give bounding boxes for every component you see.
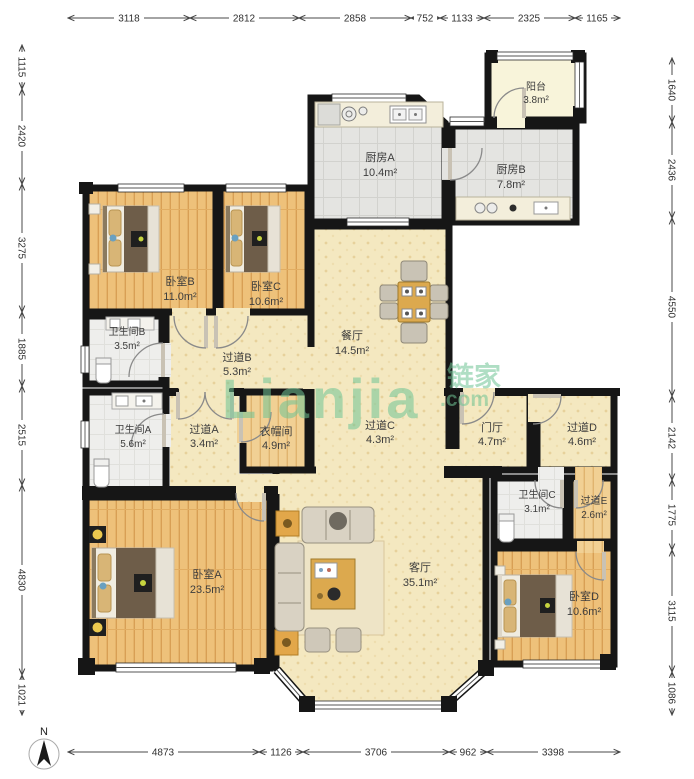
round-pillow xyxy=(329,512,347,530)
dimension-bottom: 4873 1126 3706 962 3398 xyxy=(68,747,620,759)
bed-bedroom-c xyxy=(226,206,280,272)
window-bedroom-d xyxy=(523,660,601,668)
label-bathroom-a-area: 5.6m² xyxy=(120,439,146,450)
chair xyxy=(401,323,427,343)
dim-left-5: 4830 xyxy=(16,569,27,592)
window-balcony-right xyxy=(575,62,584,108)
chair xyxy=(401,261,427,281)
chair xyxy=(430,303,448,319)
label-bathroom-b-name: 卫生间B xyxy=(109,325,146,338)
dim-right-0: 1640 xyxy=(666,79,677,102)
label-bathroom-c-name: 卫生间C xyxy=(518,488,555,501)
label-kitchen-b-area: 7.8m² xyxy=(497,179,525,191)
window-kitchen-a-top xyxy=(332,94,406,102)
dim-bottom-3: 962 xyxy=(460,748,477,759)
label-bathroom-b-area: 3.5m² xyxy=(114,341,140,352)
label-bedroom-a-area: 23.5m² xyxy=(190,584,225,596)
ottoman xyxy=(336,628,361,652)
dim-right-1: 2436 xyxy=(666,159,677,182)
dim-left-6: 1021 xyxy=(16,684,27,707)
label-corridor-a-area: 3.4m² xyxy=(190,438,218,450)
dim-top-2: 2858 xyxy=(344,14,367,25)
bed-bedroom-d xyxy=(495,566,572,649)
watermark-com: .com xyxy=(440,388,489,411)
label-hall-name: 门厅 xyxy=(481,420,503,434)
window-bedroom-c xyxy=(226,184,286,192)
label-bedroom-d-name: 卧室D xyxy=(569,589,599,603)
compass: N xyxy=(29,726,59,769)
dim-right-5: 3115 xyxy=(666,600,677,622)
floor-plan: Lianjia 链家 .com 阳台 3.8m² 厨房A 10.4m² 厨房B … xyxy=(0,0,694,774)
label-corridor-e-name: 过道E xyxy=(581,494,608,507)
dim-bottom-0: 4873 xyxy=(152,748,175,759)
dim-left-2: 3275 xyxy=(16,237,27,260)
label-kitchen-a-area: 10.4m² xyxy=(363,167,398,179)
dim-right-4: 1775 xyxy=(666,504,677,527)
burner-icon xyxy=(475,203,485,213)
window-kitchen-top-right xyxy=(450,117,484,126)
label-corridor-c-name: 过道C xyxy=(365,418,395,432)
label-bedroom-b-name: 卧室B xyxy=(165,274,194,288)
dim-top-6: 1165 xyxy=(586,14,608,25)
label-corridor-c-area: 4.3m² xyxy=(366,434,394,446)
kitchen-a-counter xyxy=(315,102,443,127)
window-bedroom-a xyxy=(116,663,236,672)
label-bathroom-c-area: 3.1m² xyxy=(524,504,550,515)
window-bathroom-b xyxy=(81,346,89,373)
dimension-right: 1640 2436 4550 2142 1775 3115 1086 xyxy=(666,58,678,715)
chair xyxy=(380,285,398,301)
dim-left-0: 1115 xyxy=(16,57,27,78)
label-corridor-d-name: 过道D xyxy=(567,420,597,434)
label-bedroom-d-area: 10.6m² xyxy=(567,606,602,618)
dim-right-3: 2142 xyxy=(666,427,677,450)
label-living-name: 客厅 xyxy=(409,560,431,574)
dimension-top: 3118 2812 2858 752 1133 2325 1165 xyxy=(68,13,620,25)
sofa-set xyxy=(275,507,384,655)
label-corridor-e-area: 2.6m² xyxy=(581,510,607,521)
label-bedroom-c-area: 10.6m² xyxy=(249,296,284,308)
window-bay-bottom xyxy=(312,701,444,709)
dim-top-1: 2812 xyxy=(233,14,256,25)
dim-top-3: 752 xyxy=(417,14,434,25)
label-dining-area: 14.5m² xyxy=(335,345,370,357)
dim-bottom-1: 1126 xyxy=(270,748,292,759)
label-balcony-name: 阳台 xyxy=(526,80,546,93)
label-kitchen-a-name: 厨房A xyxy=(365,151,395,164)
window-kitchen-a-pass xyxy=(347,218,409,226)
label-corridor-d-area: 4.6m² xyxy=(568,436,596,448)
window-balcony-top xyxy=(497,52,573,60)
chair xyxy=(430,285,448,301)
label-bedroom-a-name: 卧室A xyxy=(192,567,222,581)
label-corridor-b-name: 过道B xyxy=(222,350,251,364)
kettle-icon xyxy=(328,588,341,601)
window-bedroom-b xyxy=(118,184,184,192)
dim-top-0: 3118 xyxy=(118,14,140,25)
dim-bottom-2: 3706 xyxy=(365,748,388,759)
label-bedroom-b-area: 11.0m² xyxy=(163,291,197,303)
dim-left-4: 2515 xyxy=(16,424,27,447)
dim-top-5: 2325 xyxy=(518,14,541,25)
label-corridor-a-name: 过道A xyxy=(189,422,219,436)
label-kitchen-b-name: 厨房B xyxy=(496,163,525,176)
label-balcony-area: 3.8m² xyxy=(523,95,549,106)
dimension-left: 1115 2420 3275 1885 2515 4830 1021 xyxy=(16,45,28,715)
label-hall-area: 4.7m² xyxy=(478,436,506,448)
sofa xyxy=(275,543,304,631)
kitchen-b-counter xyxy=(456,197,570,220)
label-bathroom-a-name: 卫生间A xyxy=(115,423,152,436)
ottoman xyxy=(305,628,330,652)
dim-top-4: 1133 xyxy=(451,14,473,25)
label-living-area: 35.1m² xyxy=(403,577,438,589)
label-cloakroom-name: 衣帽间 xyxy=(260,424,293,438)
label-dining-name: 餐厅 xyxy=(341,328,363,342)
label-bedroom-c-name: 卧室C xyxy=(251,279,281,293)
chair xyxy=(380,303,398,319)
bathroom-c-fixtures xyxy=(499,514,514,542)
dim-right-6: 1086 xyxy=(666,682,677,705)
window-bathroom-a xyxy=(81,421,89,448)
dim-right-2: 4550 xyxy=(666,296,677,319)
label-corridor-b-area: 5.3m² xyxy=(223,366,251,378)
label-cloakroom-area: 4.9m² xyxy=(262,440,290,452)
compass-label: N xyxy=(40,726,48,738)
stove-icon xyxy=(342,107,356,121)
dim-bottom-4: 3398 xyxy=(542,748,565,759)
dim-left-3: 1885 xyxy=(16,338,27,361)
dim-left-1: 2420 xyxy=(16,125,27,148)
